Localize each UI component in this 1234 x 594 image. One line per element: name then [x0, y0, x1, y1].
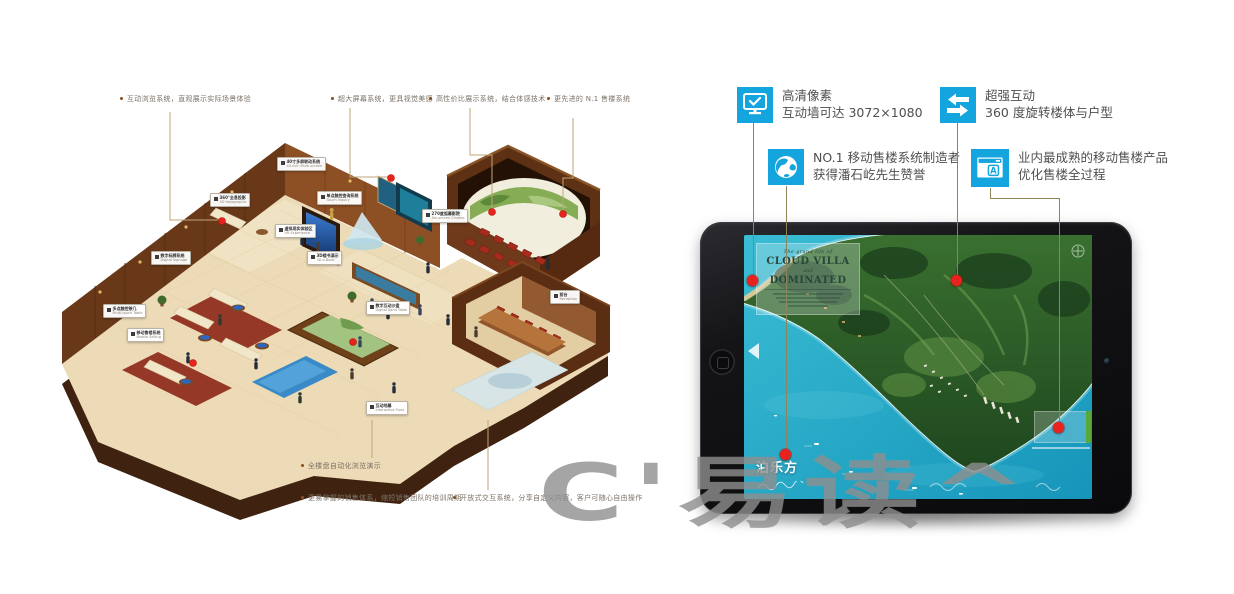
connector-line-4c — [1059, 198, 1060, 428]
feature-note-text: 超大屏幕系统，更具视觉美感 — [338, 95, 433, 103]
overlay-title-1: CLOUD VILLA — [761, 256, 855, 267]
feature-note-top-4: 更先进的 N.1 售楼系统 — [547, 94, 630, 104]
map-prev-arrow-icon — [748, 343, 759, 359]
scene-tag-arc-cinema: 270度弧幕影院Arc-screen Cinema — [422, 209, 468, 223]
globe-icon — [768, 149, 804, 185]
feature-note-text: 更先进的 N.1 售楼系统 — [554, 95, 630, 103]
feature-subtitle: 获得潘石屹先生赞誉 — [813, 166, 960, 183]
feature-mature-product: A 业内最成熟的移动售楼产品优化售楼全过程 — [971, 149, 1168, 187]
connector-line-4a — [990, 188, 991, 198]
scene-tag-signage: 数字标牌系统Digital Signage — [151, 251, 191, 265]
bullet-dot — [453, 496, 456, 499]
feature-subtitle: 互动墙可达 3072×1080 — [782, 104, 923, 121]
overlay-midline: and — [761, 268, 855, 274]
scene-tag-mobile-selling: 移动售楼系统Mobile Selling — [127, 328, 164, 342]
tag-icon — [107, 308, 111, 312]
site-watermark: C'易读^ — [538, 455, 1037, 533]
overlay-topline: The grand life of — [761, 249, 855, 255]
bullet-dot — [331, 97, 334, 100]
connector-line-1 — [753, 123, 754, 281]
map-info-panel-caption — [1032, 447, 1090, 449]
overlay-textbar — [788, 305, 828, 307]
display-check-icon — [737, 87, 773, 123]
svg-text:A: A — [990, 165, 997, 175]
tag-icon — [279, 228, 283, 232]
feature-note-bottom-1: 全楼盘自动化浏览演示 — [301, 461, 381, 471]
feature-no1-maker: NO.1 移动售楼系统制造者获得潘石屹先生赞誉 — [768, 149, 960, 185]
tag-icon — [554, 294, 558, 298]
window-translate-icon: A — [971, 149, 1009, 187]
marketing-page: 互动浏览系统，直观展示实际场景体验 超大屏幕系统，更具视觉美感 高性价比展示系统… — [0, 0, 1234, 594]
swap-arrows-icon — [940, 87, 976, 123]
connector-line-2 — [786, 186, 787, 455]
feature-note-top-1: 互动浏览系统，直观展示实际场景体验 — [120, 94, 251, 104]
overlay-textbar — [779, 301, 837, 303]
tag-icon — [370, 305, 374, 309]
feature-note-top-2: 超大屏幕系统，更具视觉美感 — [331, 94, 433, 104]
feature-note-text: 全楼盘自动化浏览演示 — [308, 462, 381, 470]
scene-tag-holographic: 360°全息投影3D Holographic — [210, 193, 250, 207]
feature-subtitle: 优化售楼全过程 — [1018, 166, 1168, 183]
map-title-overlay: The grand life of CLOUD VILLA and DOMINA… — [756, 243, 860, 315]
scene-tag-touch-inquiry: 单点触控查询系统Touch Inquiry — [317, 191, 362, 205]
map-marker-dot — [951, 275, 962, 286]
feature-hd-pixels: 高清像素互动墙可达 3072×1080 — [737, 87, 923, 123]
connector-line-3 — [957, 123, 958, 281]
scene-tag-touch-table: 多点触控茶几Multi-touch Table — [103, 304, 146, 318]
scene-tag-vr: 虚拟现实体验区VR Experience — [275, 224, 316, 238]
tag-icon — [131, 332, 135, 336]
map-marker-dot — [747, 275, 758, 286]
feature-title: NO.1 移动售楼系统制造者 — [813, 149, 960, 166]
connector-line-4b — [990, 198, 1060, 199]
home-button — [709, 349, 735, 375]
home-button-glyph — [717, 357, 729, 369]
bullet-dot — [120, 97, 123, 100]
scene-tag-sand-table: 数字互动沙盘Digital Sand Table — [366, 301, 410, 315]
feature-interaction: 超强互动360 度旋转楼体与户型 — [940, 87, 1113, 123]
overlay-title-2: DOMINATED — [761, 275, 855, 286]
tag-icon — [214, 197, 218, 201]
scene-tag-reception: 前台Reception — [550, 290, 580, 304]
feature-subtitle: 360 度旋转楼体与户型 — [985, 104, 1113, 121]
overlay-rule — [765, 289, 851, 290]
compass-icon — [1072, 245, 1084, 257]
tag-icon — [370, 405, 374, 409]
bullet-dot — [429, 97, 432, 100]
feature-title: 超强互动 — [985, 87, 1113, 104]
tag-icon — [281, 161, 285, 165]
map-info-panel-bar — [1086, 411, 1091, 443]
front-camera — [1104, 358, 1110, 364]
map-marker-dot — [1053, 422, 1064, 433]
feature-note-text: 互动浏览系统，直观展示实际场景体验 — [127, 95, 251, 103]
bullet-dot — [547, 97, 550, 100]
tag-icon — [426, 213, 430, 217]
feature-note-text: 高性价比展示系统，结合体感技术 — [436, 95, 546, 103]
tag-icon — [311, 255, 315, 259]
scene-tag-multiscreen: 40寸多屏联动系统40-inch Multi-screen — [277, 157, 326, 171]
overlay-textbar — [773, 293, 843, 295]
scene-tag-ebook: 3D楼书演示3D e-Book — [307, 251, 342, 265]
feature-title: 高清像素 — [782, 87, 923, 104]
tag-icon — [321, 195, 325, 199]
feature-title: 业内最成熟的移动售楼产品 — [1018, 149, 1168, 166]
tag-icon — [155, 255, 159, 259]
feature-note-text: 更易掌握的销售体系，缩短销售团队的培训周期 — [308, 494, 461, 502]
feature-note-top-3: 高性价比展示系统，结合体感技术 — [429, 94, 546, 104]
scene-tag-floor-screen: 互动地幕Interactive Floor — [366, 401, 408, 415]
bullet-dot — [301, 496, 304, 499]
bullet-dot — [301, 464, 304, 467]
feature-note-bottom-2: 更易掌握的销售体系，缩短销售团队的培训周期 — [301, 493, 461, 503]
